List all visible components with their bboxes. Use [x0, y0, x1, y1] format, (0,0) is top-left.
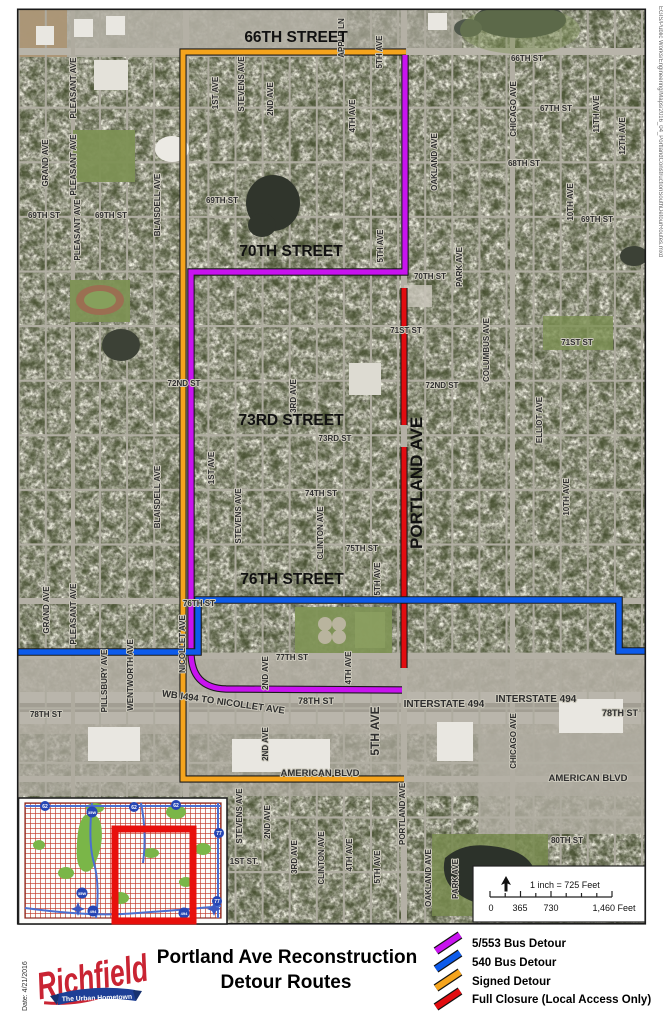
svg-text:Date: 4/21/2016: Date: 4/21/2016 — [22, 961, 29, 1011]
svg-text:1ST ST.: 1ST ST. — [230, 857, 258, 866]
svg-text:78TH ST: 78TH ST — [602, 708, 639, 718]
svg-text:PLEASANT AVE: PLEASANT AVE — [69, 134, 78, 196]
svg-text:80TH ST: 80TH ST — [551, 836, 583, 845]
svg-text:78TH ST: 78TH ST — [30, 710, 62, 719]
svg-text:WENTWORTH AVE: WENTWORTH AVE — [126, 639, 135, 711]
svg-text:365: 365 — [512, 903, 527, 913]
svg-text:BLAISDELL AVE: BLAISDELL AVE — [153, 173, 162, 236]
svg-text:35W: 35W — [88, 810, 96, 815]
svg-text:11TH AVE: 11TH AVE — [592, 95, 601, 133]
svg-text:STEVENS AVE: STEVENS AVE — [237, 56, 246, 112]
svg-text:69TH ST: 69TH ST — [28, 211, 60, 220]
svg-text:COLUMBUS AVE: COLUMBUS AVE — [482, 317, 491, 382]
svg-text:EGIS/Public Works/Engineering/: EGIS/Public Works/Engineering/Maps/2016_… — [657, 6, 663, 257]
svg-text:Detour Routes: Detour Routes — [221, 972, 352, 993]
svg-text:PORTLAND AVE: PORTLAND AVE — [407, 417, 426, 549]
svg-text:62: 62 — [173, 803, 179, 809]
svg-text:5TH AVE: 5TH AVE — [376, 229, 385, 263]
svg-text:GRAND AVE: GRAND AVE — [42, 586, 51, 634]
svg-text:5TH AVE: 5TH AVE — [375, 35, 384, 69]
svg-text:3RD AVE: 3RD AVE — [290, 839, 299, 873]
svg-text:10TH AVE: 10TH AVE — [566, 183, 575, 221]
svg-text:75TH ST: 75TH ST — [346, 544, 378, 553]
svg-text:71ST ST: 71ST ST — [561, 338, 593, 347]
svg-text:CLINTON AVE: CLINTON AVE — [316, 506, 325, 560]
svg-text:CHICAGO AVE: CHICAGO AVE — [509, 81, 518, 137]
svg-text:STEVENS AVE: STEVENS AVE — [234, 488, 243, 544]
svg-text:10TH AVE: 10TH AVE — [562, 478, 571, 516]
svg-text:PLEASANT AVE: PLEASANT AVE — [73, 199, 82, 261]
svg-text:67TH ST: 67TH ST — [540, 104, 572, 113]
svg-text:The Urban Hometown: The Urban Hometown — [62, 994, 132, 1003]
svg-text:Signed Detour: Signed Detour — [472, 976, 551, 988]
svg-text:INTERSTATE 494: INTERSTATE 494 — [404, 699, 485, 710]
svg-text:5/553 Bus Detour: 5/553 Bus Detour — [472, 938, 566, 950]
svg-text:494: 494 — [90, 909, 97, 914]
svg-text:78TH ST: 78TH ST — [298, 696, 335, 706]
svg-text:STEVENS AVE: STEVENS AVE — [235, 788, 244, 844]
svg-text:71ST ST: 71ST ST — [390, 326, 422, 335]
svg-text:Portland Ave Reconstruction: Portland Ave Reconstruction — [157, 947, 417, 968]
svg-text:62: 62 — [42, 804, 48, 810]
svg-text:76TH STREET: 76TH STREET — [240, 571, 344, 588]
svg-text:35W: 35W — [78, 891, 86, 896]
svg-text:1ST AVE: 1ST AVE — [211, 76, 220, 109]
svg-text:2ND AVE: 2ND AVE — [266, 81, 275, 115]
svg-text:74TH ST: 74TH ST — [305, 489, 337, 498]
svg-text:4TH AVE: 4TH AVE — [348, 99, 357, 133]
svg-text:PARK AVE: PARK AVE — [455, 246, 464, 287]
svg-text:77TH ST: 77TH ST — [276, 653, 308, 662]
svg-text:PORTLAND AVE: PORTLAND AVE — [398, 782, 407, 845]
svg-text:12TH AVE: 12TH AVE — [618, 117, 627, 155]
svg-text:3RD AVE: 3RD AVE — [289, 378, 298, 412]
svg-text:69TH ST: 69TH ST — [206, 196, 238, 205]
svg-text:69TH ST: 69TH ST — [95, 211, 127, 220]
svg-text:BLAISDELL AVE: BLAISDELL AVE — [153, 465, 162, 528]
svg-text:0: 0 — [488, 903, 493, 913]
svg-text:77: 77 — [214, 899, 220, 905]
svg-text:Full Closure (Local Access Onl: Full Closure (Local Access Only) — [472, 994, 651, 1006]
svg-text:72ND ST: 72ND ST — [426, 381, 459, 390]
svg-text:494: 494 — [181, 911, 188, 916]
svg-text:2ND AVE: 2ND AVE — [263, 804, 272, 838]
svg-text:73RD ST: 73RD ST — [319, 434, 352, 443]
svg-text:76TH ST: 76TH ST — [183, 599, 215, 608]
svg-text:CLINTON AVE: CLINTON AVE — [317, 831, 326, 885]
svg-text:540 Bus Detour: 540 Bus Detour — [472, 957, 557, 969]
svg-text:5TH AVE: 5TH AVE — [368, 706, 382, 755]
svg-text:AMERICAN BLVD: AMERICAN BLVD — [281, 768, 360, 779]
svg-text:1ST AVE: 1ST AVE — [207, 451, 216, 484]
svg-text:PILLSBURY AVE: PILLSBURY AVE — [100, 649, 109, 712]
svg-text:70TH ST: 70TH ST — [414, 272, 446, 281]
svg-text:ELLIOT AVE: ELLIOT AVE — [535, 396, 544, 443]
svg-text:INTERSTATE 494: INTERSTATE 494 — [496, 694, 577, 705]
svg-text:72ND ST: 72ND ST — [168, 379, 201, 388]
svg-text:5TH AVE: 5TH AVE — [373, 850, 382, 884]
svg-text:1,460 Feet: 1,460 Feet — [592, 903, 636, 913]
svg-text:73RD STREET: 73RD STREET — [238, 412, 344, 429]
svg-text:CHICAGO AVE: CHICAGO AVE — [509, 713, 518, 769]
svg-text:2ND AVE: 2ND AVE — [261, 655, 270, 689]
svg-text:66TH ST: 66TH ST — [511, 54, 543, 63]
svg-text:GRAND AVE: GRAND AVE — [41, 139, 50, 187]
svg-text:1 inch = 725 Feet: 1 inch = 725 Feet — [530, 880, 600, 890]
svg-text:2ND AVE: 2ND AVE — [261, 726, 270, 760]
svg-text:PARK AVE: PARK AVE — [451, 858, 460, 899]
svg-text:OAKLAND AVE: OAKLAND AVE — [424, 848, 433, 906]
svg-text:NICOLLET AVE: NICOLLET AVE — [178, 614, 187, 672]
svg-text:AMERICAN BLVD: AMERICAN BLVD — [549, 773, 628, 784]
svg-text:730: 730 — [543, 903, 558, 913]
svg-text:69TH ST: 69TH ST — [581, 215, 613, 224]
svg-text:PLEASANT AVE: PLEASANT AVE — [69, 57, 78, 119]
svg-text:66TH STREET: 66TH STREET — [244, 29, 348, 46]
svg-text:70TH STREET: 70TH STREET — [239, 243, 343, 260]
svg-text:4TH AVE: 4TH AVE — [345, 838, 354, 872]
svg-text:OAKLAND AVE: OAKLAND AVE — [430, 132, 439, 190]
svg-text:4TH AVE: 4TH AVE — [344, 651, 353, 685]
svg-text:77: 77 — [216, 831, 222, 837]
svg-text:PLEASANT AVE: PLEASANT AVE — [69, 583, 78, 645]
svg-text:5TH AVE: 5TH AVE — [373, 562, 382, 596]
svg-text:62: 62 — [131, 805, 137, 811]
svg-text:68TH ST: 68TH ST — [508, 159, 540, 168]
